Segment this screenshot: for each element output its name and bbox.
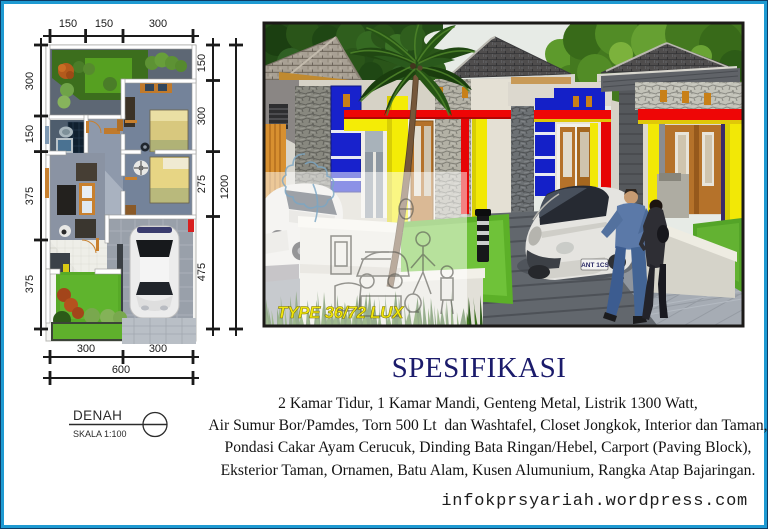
svg-text:300: 300 (196, 107, 208, 125)
svg-text:300: 300 (77, 343, 95, 355)
svg-text:475: 475 (196, 263, 208, 281)
svg-text:1200: 1200 (219, 175, 231, 199)
svg-text:SKALA 1:100: SKALA 1:100 (73, 429, 127, 439)
svg-text:DENAH: DENAH (73, 408, 122, 423)
svg-text:375: 375 (24, 275, 36, 293)
svg-text:300: 300 (149, 18, 167, 30)
svg-text:150: 150 (95, 18, 113, 30)
svg-text:TYPE 36/72 LUX: TYPE 36/72 LUX (277, 303, 405, 322)
svg-text:300: 300 (149, 343, 167, 355)
svg-text:150: 150 (59, 18, 77, 30)
svg-text:600: 600 (112, 364, 130, 376)
svg-text:275: 275 (196, 175, 208, 193)
svg-text:375: 375 (24, 187, 36, 205)
svg-text:300: 300 (24, 72, 36, 90)
svg-text:150: 150 (24, 125, 36, 143)
svg-text:150: 150 (196, 54, 208, 72)
svg-text:ANT 1CS: ANT 1CS (581, 262, 609, 269)
